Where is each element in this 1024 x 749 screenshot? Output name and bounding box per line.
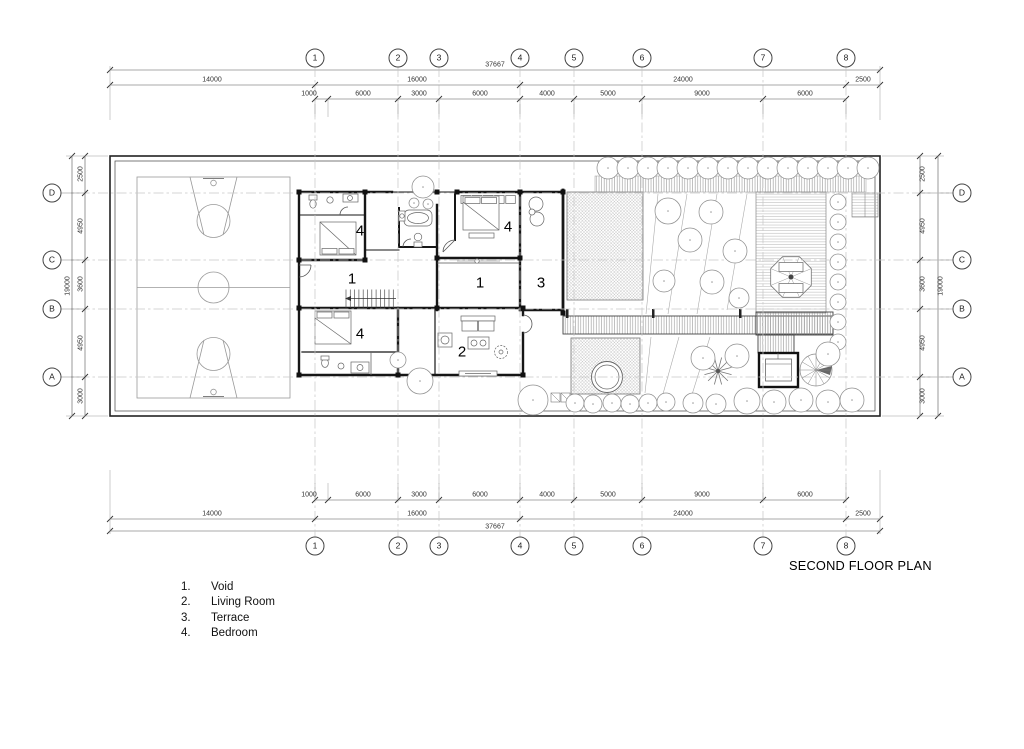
legend-item: 4.Bedroom <box>181 627 275 642</box>
gazebo <box>771 257 812 298</box>
legend-item: 1.Void <box>181 581 275 596</box>
legend-item: 3.Terrace <box>181 612 275 627</box>
basketball-court <box>137 177 290 398</box>
room-legend: 1.Void2.Living Room3.Terrace4.Bedroom <box>181 581 275 643</box>
floor-plan-drawing <box>0 0 1024 749</box>
deck <box>756 192 878 313</box>
legend-number: 3. <box>181 612 211 624</box>
legend-number: 4. <box>181 627 211 639</box>
legend-label: Void <box>211 581 233 593</box>
legend-label: Bedroom <box>211 627 258 639</box>
legend-label: Living Room <box>211 596 275 608</box>
elevator <box>759 353 798 387</box>
legend-number: 2. <box>181 596 211 608</box>
furniture-fixtures <box>309 194 544 376</box>
legend-item: 2.Living Room <box>181 596 275 611</box>
plan-title: SECOND FLOOR PLAN <box>789 558 932 573</box>
drawing-canvas: 1122334455667788DDCCBBAA3766714000160002… <box>0 0 1024 749</box>
legend-number: 1. <box>181 581 211 593</box>
legend-label: Terrace <box>211 612 249 624</box>
